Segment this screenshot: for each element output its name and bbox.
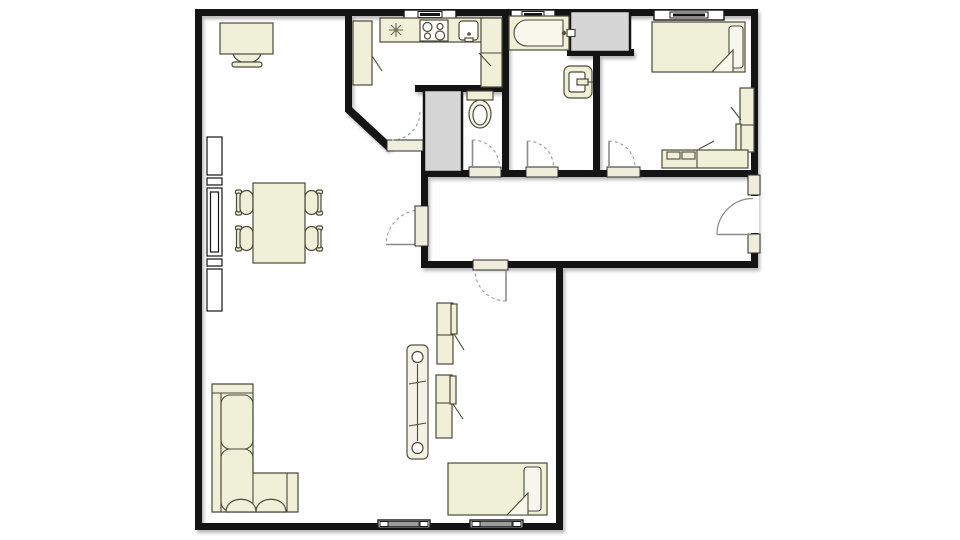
toilet-seat: [473, 105, 487, 125]
floor-vent-living: [378, 520, 430, 528]
wall-left: [195, 9, 202, 530]
cooktop: [420, 20, 448, 41]
wall-hallway-south: [421, 261, 758, 268]
wall-kitchen-bathroom: [502, 9, 509, 177]
bathtub: [509, 16, 575, 50]
wall-bedroom2-east: [556, 261, 563, 530]
wall-bedroom1-west: [593, 53, 600, 177]
duct-shaft-wc: [424, 90, 462, 172]
bed: [448, 463, 547, 515]
desk: [220, 23, 273, 54]
floor-plan: [0, 0, 960, 540]
radiator: [407, 345, 428, 459]
bathtub-drain: [562, 31, 566, 35]
kitchen-sink: [459, 21, 478, 42]
dining-table: [253, 183, 305, 263]
wc: [467, 91, 493, 128]
duct-shaft-bathroom: [570, 11, 630, 52]
washbasin: [564, 66, 593, 98]
bed: [652, 22, 745, 72]
wall-kitchen-west: [345, 9, 352, 112]
shelving-unit: [207, 137, 222, 311]
floor-vent-bedroom2: [470, 520, 523, 528]
tall-cabinet: [353, 21, 372, 85]
floor-plan-canvas: [0, 0, 960, 540]
dining-chair: [305, 226, 323, 251]
dining-chair: [236, 226, 254, 251]
fridge-icon: [389, 23, 403, 37]
window-bedroom1: [654, 10, 724, 20]
dining-chair: [305, 190, 323, 215]
toilet-cistern: [467, 91, 493, 100]
dining-chair: [236, 190, 254, 215]
bathtub-faucet: [567, 30, 575, 37]
